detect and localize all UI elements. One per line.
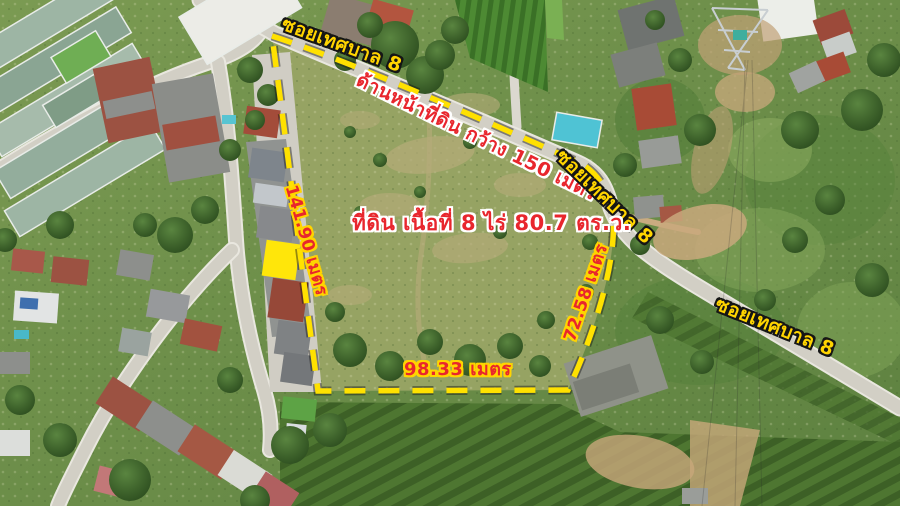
aerial-scene [0,0,900,506]
aerial-photo: ซอยเทศบาล 8 ด้านหน้าที่ดิน กว้าง 150 เมต… [0,0,900,506]
highlighted-unit [262,240,301,280]
